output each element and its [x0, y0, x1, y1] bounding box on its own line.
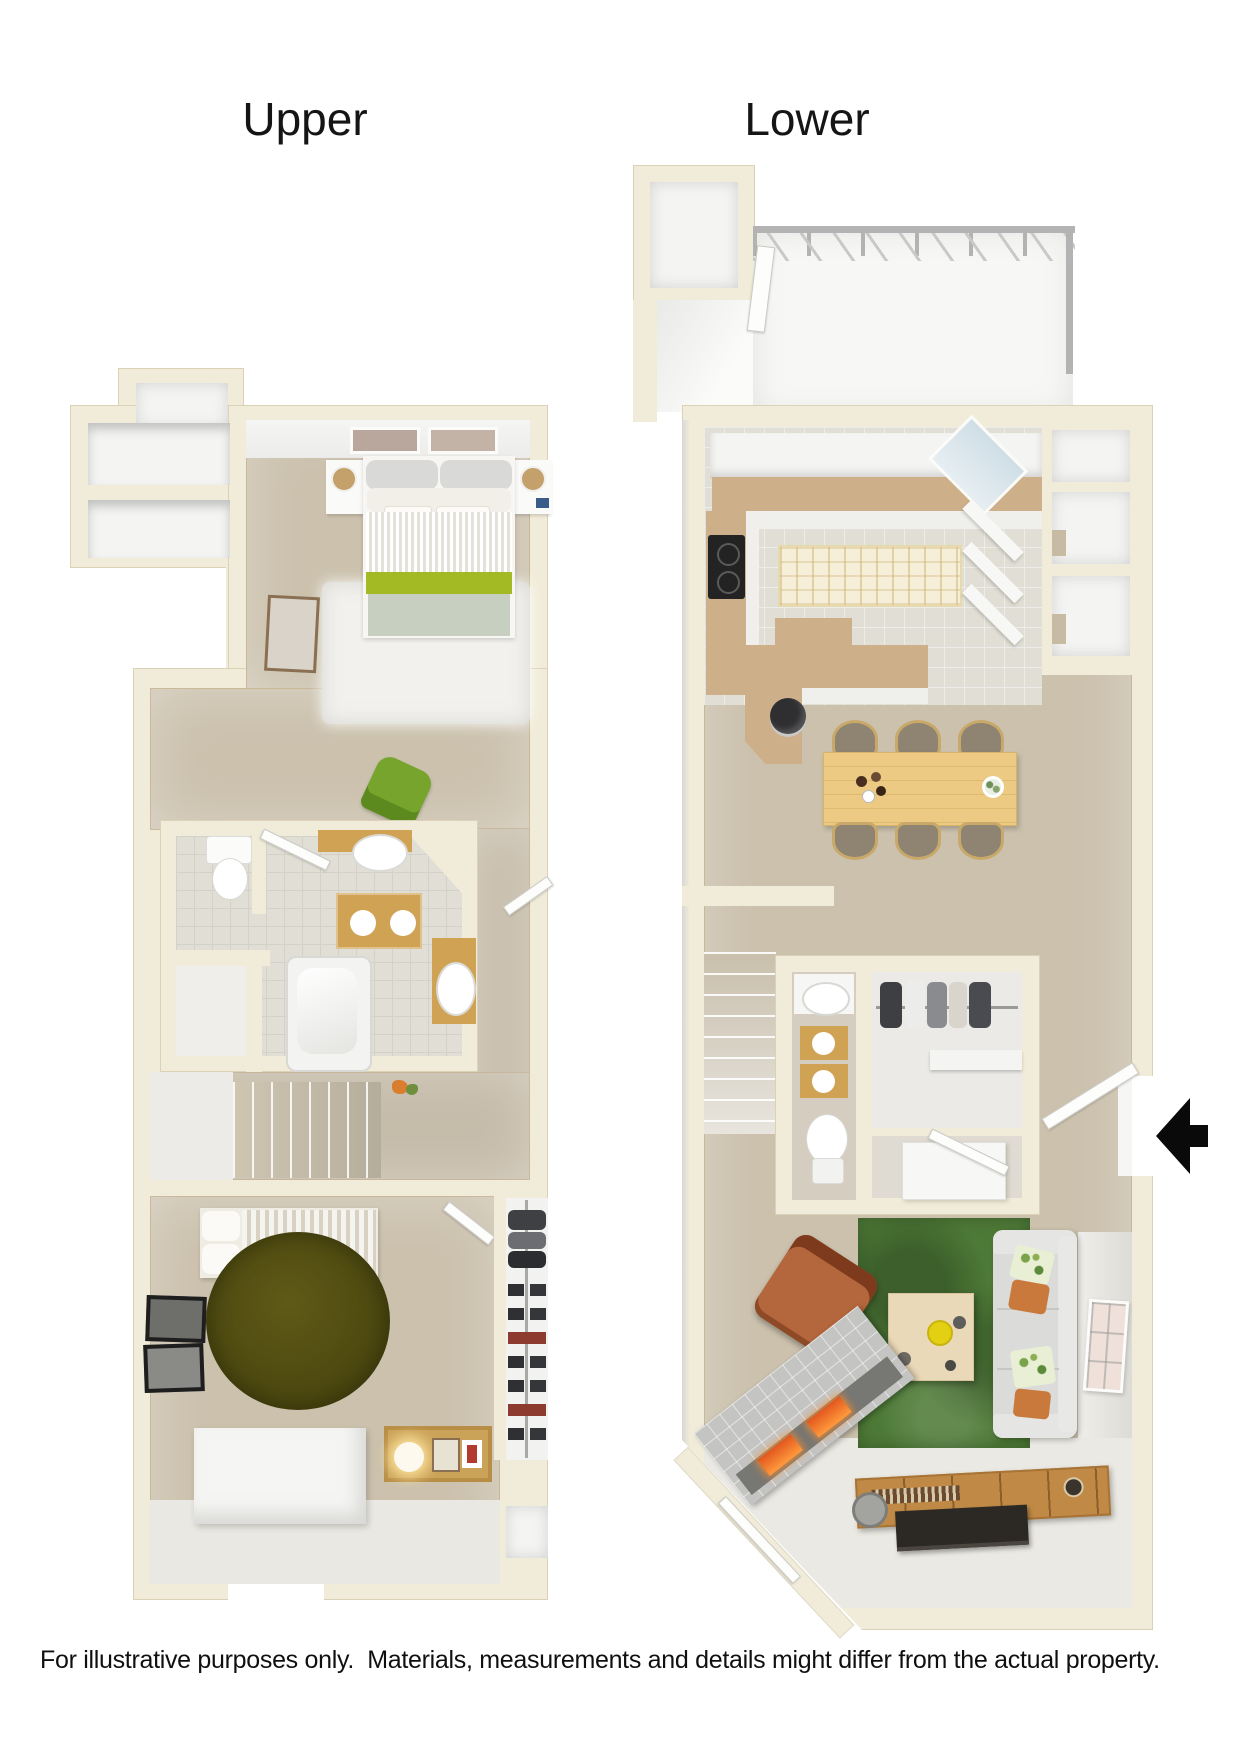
console-decor [1063, 1477, 1084, 1498]
table-cup [876, 786, 886, 796]
dining-chair [895, 822, 941, 860]
closet-shelf [930, 1050, 1022, 1070]
sink-round [812, 1032, 835, 1055]
table-decor-yellow [927, 1320, 953, 1346]
pillow-cactus [1010, 1345, 1057, 1388]
sink-oval [802, 982, 850, 1016]
hall-divider-wall [682, 886, 834, 906]
table-pebble [953, 1316, 966, 1329]
table-cup [871, 772, 881, 782]
peninsula-counter-b [745, 645, 928, 689]
arrow-stem [1189, 1125, 1208, 1147]
kitchen-runner-rug [778, 545, 962, 607]
arrow-left-icon [1156, 1098, 1208, 1174]
pillow-orange [1008, 1279, 1051, 1315]
patio-railing-hatch [753, 233, 1075, 261]
table-pebble [945, 1360, 956, 1371]
stove-cooktop [708, 535, 745, 599]
sofa-backrest [1058, 1236, 1077, 1432]
hanging-clothes [927, 982, 947, 1028]
dining-chair [958, 822, 1004, 860]
leaning-picture-frame [1083, 1299, 1129, 1394]
hanging-clothes [969, 982, 991, 1028]
arrow-head [1156, 1098, 1190, 1174]
burner-icon [717, 543, 740, 566]
floorplan-page: Upper Lower [0, 0, 1240, 1754]
toilet-tank [812, 1158, 844, 1184]
burner-icon [717, 571, 740, 594]
television [895, 1505, 1029, 1552]
storage-connector-wall [633, 300, 657, 422]
hanging-clothes [905, 980, 925, 1028]
right-niche [1052, 430, 1130, 482]
niche-carpet-edge [1052, 614, 1066, 644]
table-plant [982, 776, 1004, 798]
disclaimer-text: For illustrative purposes only. Material… [40, 1646, 1210, 1675]
exterior-wall-face [657, 300, 755, 412]
table-cup [856, 776, 867, 787]
storage-closet-interior [650, 182, 738, 288]
hanging-clothes [949, 982, 967, 1028]
trash-bin [770, 698, 806, 734]
table-cup [862, 790, 875, 803]
toilet [806, 1114, 848, 1164]
hanging-clothes [880, 982, 902, 1028]
entry-door-gap [1132, 1076, 1153, 1176]
peninsula-face [802, 688, 928, 704]
sink-round [812, 1070, 835, 1093]
pillow-orange [1013, 1388, 1052, 1420]
niche-carpet-edge [1052, 530, 1066, 556]
patio-railing-right [1066, 226, 1073, 374]
dining-chair [832, 822, 878, 860]
wall-shadow [682, 420, 690, 1615]
lower-stairs [704, 952, 776, 1134]
speaker-icon [852, 1492, 888, 1528]
lower-floorplan [0, 0, 1240, 1754]
